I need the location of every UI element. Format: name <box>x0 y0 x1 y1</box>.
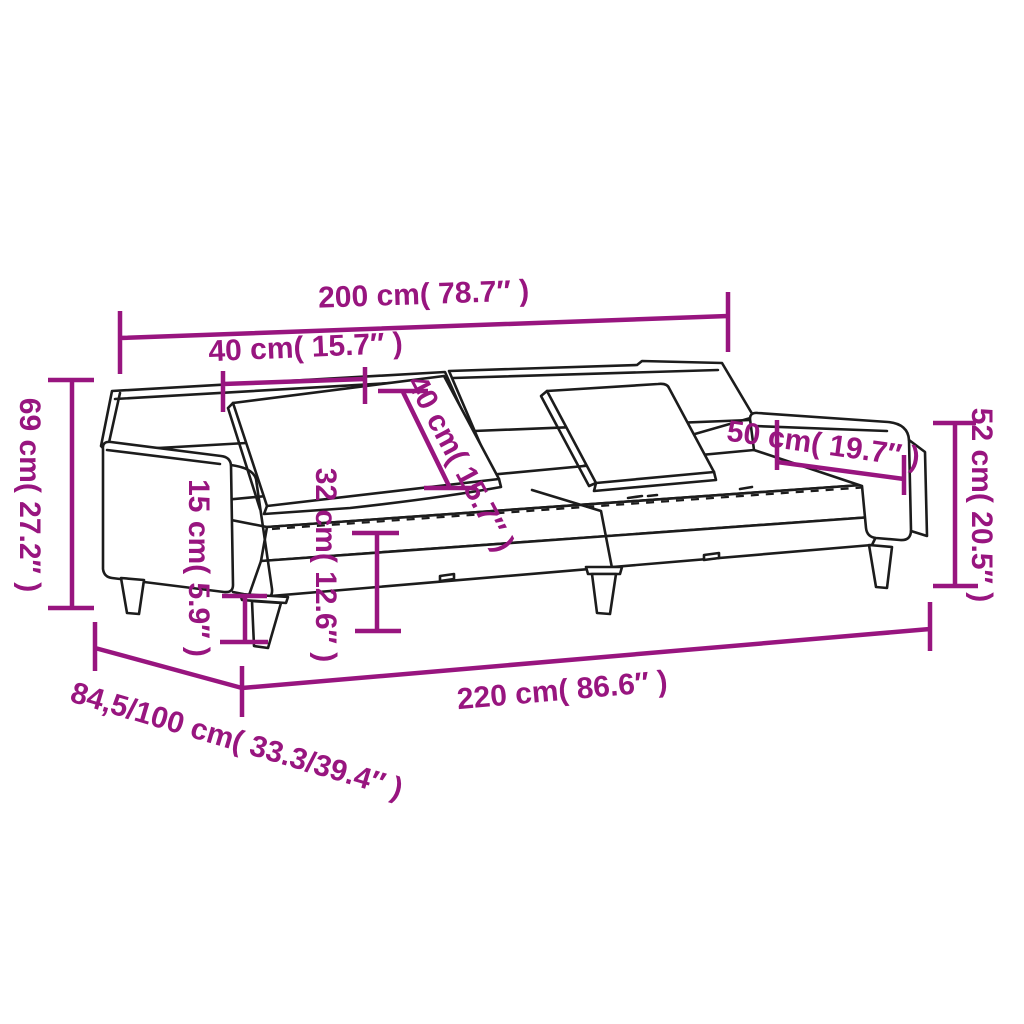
dim-armrest-height-label: 52 cm( 20.5″ ) <box>965 408 998 602</box>
sofa-leg-right <box>869 545 892 588</box>
product-dimension-diagram: 200 cm( 78.7″ ) 40 cm( 15.7″ ) 40 cm( 15… <box>0 0 1024 1024</box>
diagram-canvas: 200 cm( 78.7″ ) 40 cm( 15.7″ ) 40 cm( 15… <box>0 0 1024 1024</box>
dim-leg-height-label: 15 cm( 5.9″ ) <box>182 479 215 657</box>
base-mount-left <box>440 574 454 581</box>
dim-total-height-line <box>48 380 94 608</box>
dim-depth-label: 84,5/100 cm( 33.3/39.4″ ) <box>67 676 407 806</box>
sofa-leg-middle <box>592 574 616 614</box>
sofa-leg-rear-left <box>121 578 144 614</box>
dim-total-length: 220 cm( 86.6″ ) <box>242 602 930 717</box>
dim-total-height-label: 69 cm( 27.2″ ) <box>13 398 46 592</box>
dim-cushion-width-label: 40 cm( 15.7″ ) <box>208 327 404 368</box>
dim-armrest-height: 52 cm( 20.5″ ) <box>933 408 998 602</box>
dim-total-length-label: 220 cm( 86.6″ ) <box>456 665 669 716</box>
base-mount-right <box>704 553 719 560</box>
dim-total-height: 69 cm( 27.2″ ) <box>13 380 94 608</box>
dim-depth-line <box>95 622 242 688</box>
dim-back-width-label: 200 cm( 78.7″ ) <box>318 274 530 314</box>
dim-depth: 84,5/100 cm( 33.3/39.4″ ) <box>67 622 407 806</box>
dim-seat-height-label: 32 cm( 12.6″ ) <box>309 468 342 662</box>
